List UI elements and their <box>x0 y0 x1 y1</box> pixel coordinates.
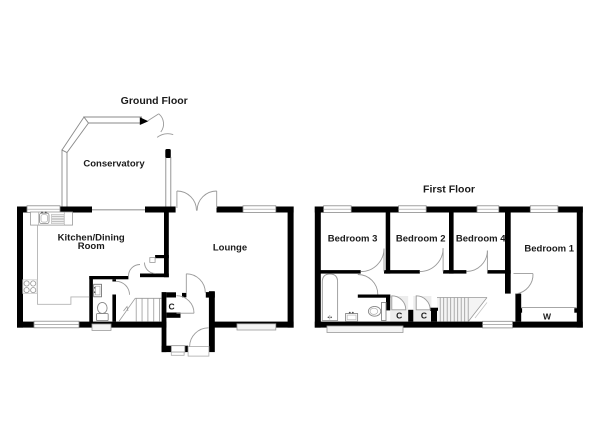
svg-text:C: C <box>169 302 175 312</box>
svg-text:W: W <box>543 312 552 322</box>
svg-text:First Floor: First Floor <box>423 183 475 195</box>
svg-text:Room: Room <box>78 241 105 252</box>
svg-text:Bedroom 3: Bedroom 3 <box>328 234 378 245</box>
svg-text:Bedroom 4: Bedroom 4 <box>456 234 506 245</box>
svg-text:Bedroom 1: Bedroom 1 <box>524 244 574 255</box>
svg-text:Conservatory: Conservatory <box>83 159 145 170</box>
svg-text:Ground Floor: Ground Floor <box>121 95 188 107</box>
svg-text:C: C <box>421 310 427 320</box>
svg-text:C: C <box>396 310 402 320</box>
svg-text:Bedroom 2: Bedroom 2 <box>396 234 446 245</box>
svg-text:Lounge: Lounge <box>213 243 247 254</box>
